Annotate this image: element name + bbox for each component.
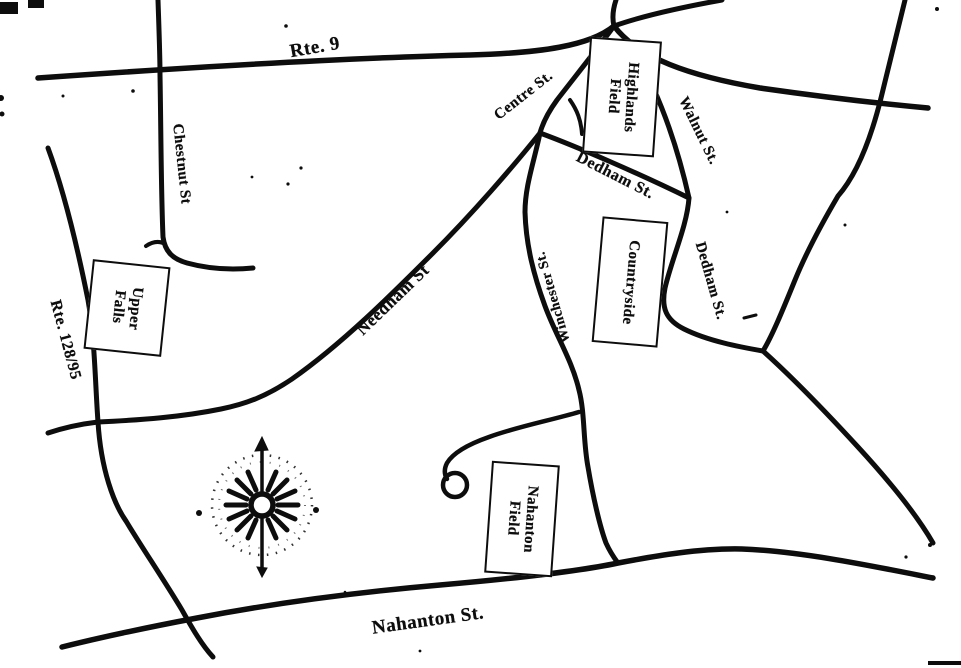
road-northeast-branch [614,0,722,26]
place-label-countryside: Countryside [618,239,642,325]
place-label-line: Countryside [618,239,642,325]
road-north-stub [613,0,616,26]
place-label-nahanton-field: Nahanton Field [503,484,541,554]
compass-rose-icon [196,437,319,577]
place-box-nahanton-field: Nahanton Field [484,461,560,577]
cul-de-sac-loop [443,473,467,497]
place-label-upper-falls: Upper Falls [108,285,146,332]
place-box-countryside: Countryside [592,216,669,347]
scan-artifact-dash [744,315,756,318]
road-southeast-continuation [763,351,933,543]
road-right-diagonal [763,0,905,351]
north-arrow-icon [255,437,268,451]
place-label-line: Nahanton [520,485,541,553]
place-label-highlands-field: Highlands Field [603,61,641,134]
map-canvas: Highlands Field Countryside Upper Falls … [0,0,961,668]
road-chestnut-spur [146,242,163,246]
place-box-highlands-field: Highlands Field [582,37,662,158]
place-box-upper-falls: Upper Falls [84,259,171,357]
road-rte-128-95 [48,148,213,657]
road-highlands-stub [570,100,582,134]
